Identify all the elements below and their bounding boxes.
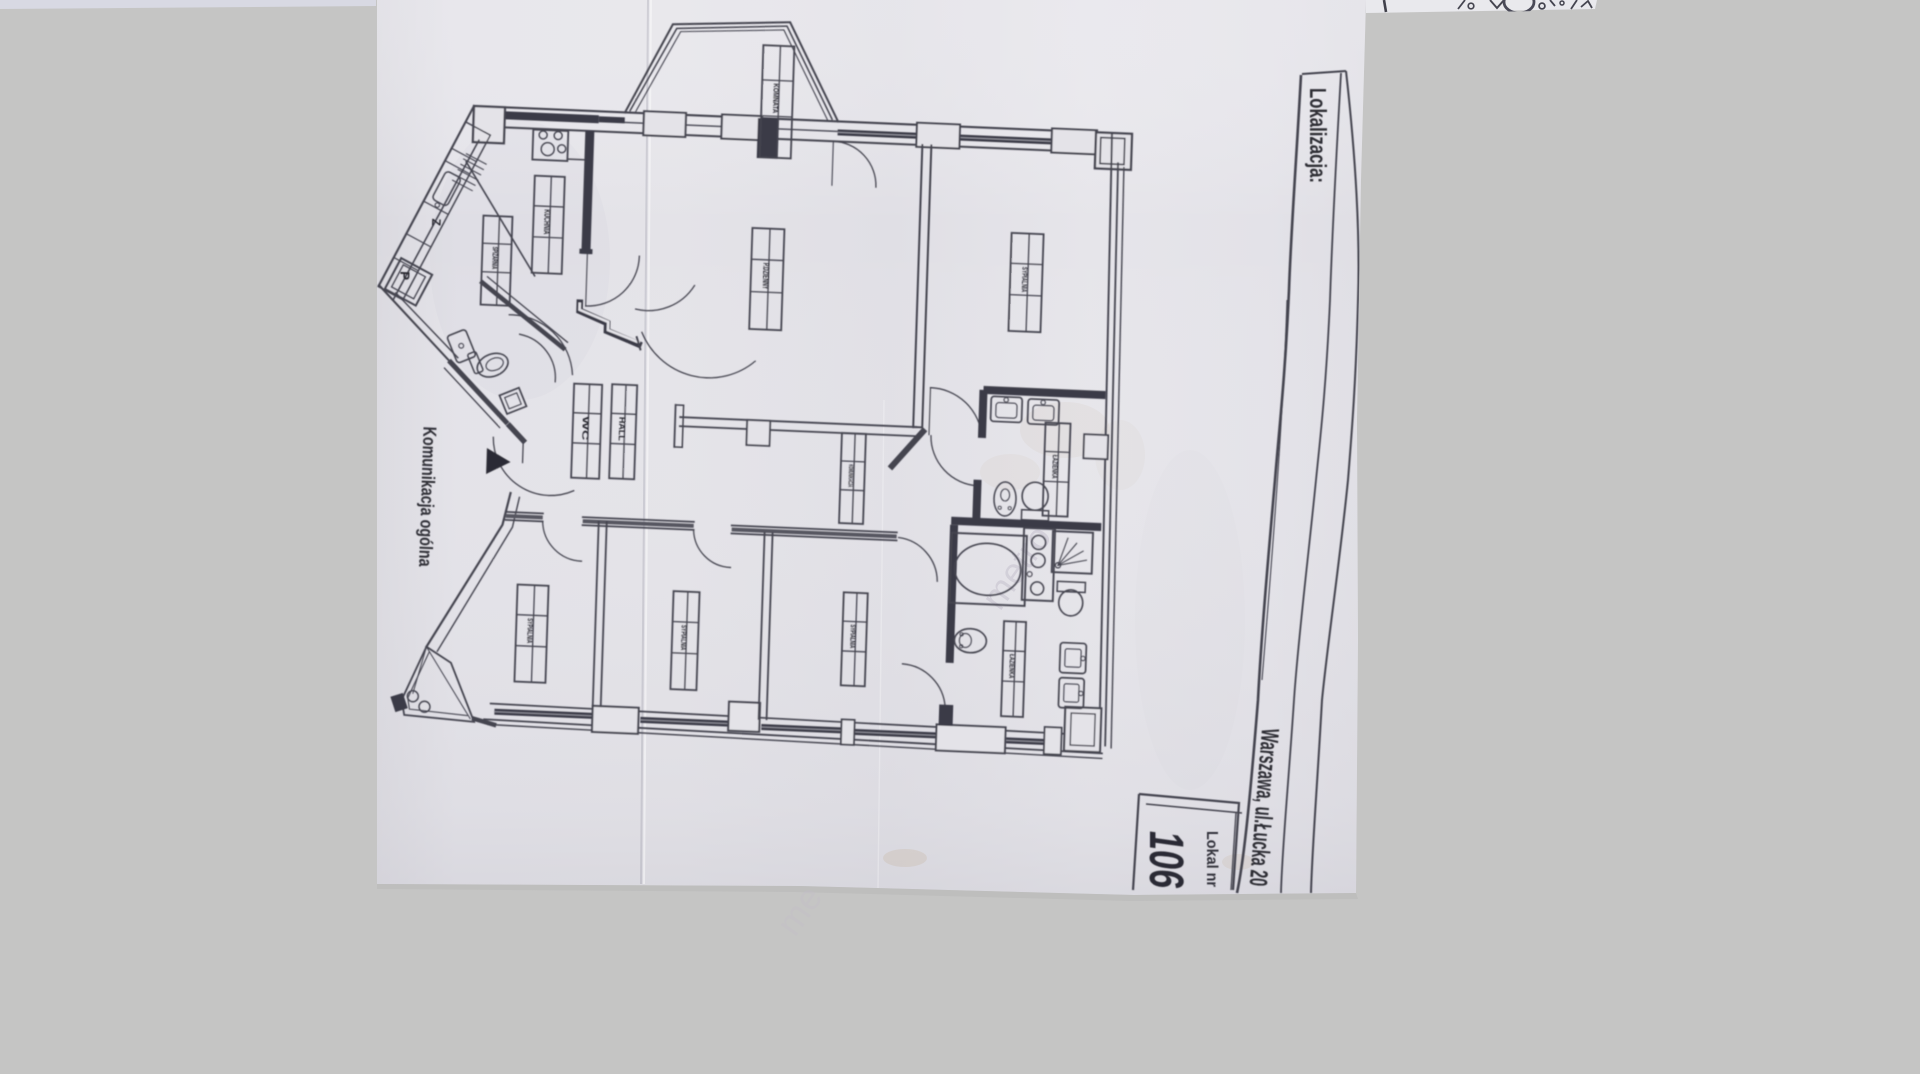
svg-text:KOMNATA: KOMNATA xyxy=(771,83,779,113)
svg-text:SYPIALNIA: SYPIALNIA xyxy=(525,618,535,644)
svg-text:Z: Z xyxy=(429,218,443,226)
svg-text:KUCHNIA: KUCHNIA xyxy=(542,209,553,234)
svg-text:ŁAZIENKA: ŁAZIENKA xyxy=(1050,455,1058,479)
svg-text:ŁAZIENKA: ŁAZIENKA xyxy=(1007,654,1015,679)
svg-text:KOMUNIKACJA: KOMUNIKACJA xyxy=(846,464,854,487)
svg-text:SYPIALNIA: SYPIALNIA xyxy=(1020,267,1030,293)
svg-text:SPIŻARNIA: SPIŻARNIA xyxy=(490,247,500,270)
svg-text:WC: WC xyxy=(580,416,591,441)
svg-text:Lokal nr: Lokal nr xyxy=(1203,831,1220,887)
svg-text:P.DZIENNY: P.DZIENNY xyxy=(760,263,770,290)
svg-text:106: 106 xyxy=(1139,831,1192,888)
svg-text:HALL: HALL xyxy=(617,417,628,442)
svg-text:SYPIALNIA: SYPIALNIA xyxy=(679,625,689,651)
svg-text:SYPIALNIA: SYPIALNIA xyxy=(848,624,858,648)
svg-text:P: P xyxy=(397,271,412,281)
svg-text:Lokalizacja:: Lokalizacja: xyxy=(1305,88,1331,183)
